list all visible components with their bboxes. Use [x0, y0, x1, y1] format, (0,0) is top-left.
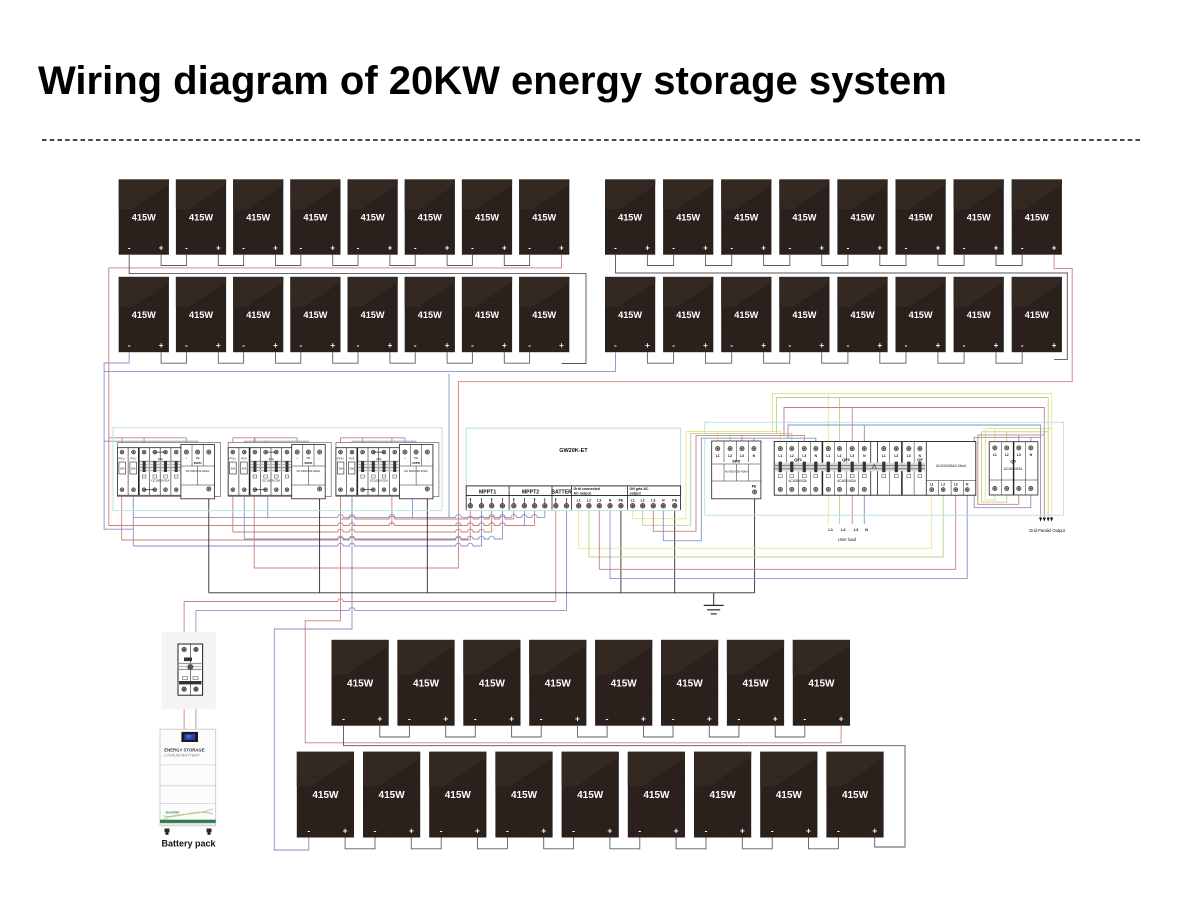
svg-text:-: - — [572, 826, 575, 836]
svg-text:BATTER: BATTER — [551, 489, 572, 495]
svg-text:415W: 415W — [792, 310, 816, 320]
svg-text:+: + — [273, 244, 278, 253]
svg-text:415W: 415W — [792, 212, 816, 222]
svg-text:-: - — [606, 714, 609, 724]
svg-text:L3: L3 — [850, 454, 854, 458]
svg-text:-: - — [242, 244, 245, 253]
svg-text:L1: L1 — [631, 499, 635, 503]
svg-text:-: - — [540, 714, 543, 724]
svg-text:-: - — [566, 498, 567, 502]
svg-text:+: + — [330, 341, 335, 350]
svg-text:2SPD: 2SPD — [304, 461, 313, 465]
svg-text:-: - — [502, 498, 503, 502]
svg-text:+: + — [994, 244, 999, 253]
svg-text:-: - — [737, 714, 740, 724]
svg-text:output: output — [630, 492, 642, 496]
svg-text:+: + — [330, 244, 335, 253]
svg-text:415W: 415W — [189, 310, 213, 320]
svg-text:L2: L2 — [587, 499, 591, 503]
svg-text:+: + — [645, 341, 650, 350]
svg-text:-: - — [242, 341, 245, 350]
svg-text:MPPT2: MPPT2 — [522, 489, 539, 495]
svg-text:PV2+: PV2+ — [229, 457, 236, 461]
svg-text:+: + — [641, 714, 646, 724]
svg-text:-: - — [905, 244, 908, 253]
svg-text:L2: L2 — [1005, 453, 1009, 457]
svg-text:415W: 415W — [132, 310, 156, 320]
svg-text:PV2-: PV2- — [241, 457, 247, 461]
svg-text:415W: 415W — [909, 310, 933, 320]
svg-text:+: + — [761, 244, 766, 253]
svg-text:415W: 415W — [734, 310, 758, 320]
svg-text:+: + — [443, 714, 448, 724]
svg-text:-: - — [905, 341, 908, 350]
svg-text:+: + — [936, 341, 941, 350]
svg-text:415W: 415W — [479, 678, 506, 689]
svg-text:+: + — [936, 244, 941, 253]
svg-text:415W: 415W — [1025, 310, 1049, 320]
svg-text:415W: 415W — [545, 678, 572, 689]
svg-text:-: - — [963, 341, 966, 350]
svg-text:+: + — [575, 714, 580, 724]
svg-text:415W: 415W — [532, 310, 556, 320]
svg-text:-: - — [544, 498, 545, 502]
svg-text:L3: L3 — [907, 454, 911, 458]
svg-text:+: + — [377, 714, 382, 724]
svg-text:-: - — [847, 341, 850, 350]
svg-text:-: - — [357, 341, 360, 350]
svg-text:+: + — [703, 244, 708, 253]
svg-text:-: - — [307, 826, 310, 836]
svg-text:+: + — [872, 826, 877, 836]
svg-text:415W: 415W — [710, 790, 737, 801]
svg-text:415W: 415W — [418, 310, 442, 320]
svg-text:-: - — [414, 244, 417, 253]
svg-text:-: - — [299, 341, 302, 350]
svg-text:415W: 415W — [618, 310, 642, 320]
svg-text:+: + — [509, 714, 514, 724]
svg-text:+: + — [559, 244, 564, 253]
svg-text:PV1+: PV1+ — [119, 457, 126, 461]
svg-text:2SPD: 2SPD — [412, 461, 421, 465]
svg-text:PE: PE — [414, 456, 418, 460]
svg-text:-: - — [730, 244, 733, 253]
svg-text:-: - — [357, 244, 360, 253]
svg-text:Q5: Q5 — [1010, 459, 1016, 464]
svg-text:+: + — [819, 341, 824, 350]
svg-text:PV3+: PV3+ — [337, 457, 344, 461]
svg-text:415W: 415W — [850, 212, 874, 222]
svg-text:+: + — [216, 244, 221, 253]
svg-text:+: + — [534, 498, 536, 502]
svg-text:SPD: SPD — [732, 459, 740, 464]
svg-text:+: + — [707, 714, 712, 724]
svg-text:63A: 63A — [269, 457, 274, 461]
svg-text:LITHIUM BATTERY: LITHIUM BATTERY — [164, 752, 200, 757]
svg-text:-: - — [408, 714, 411, 724]
svg-text:415W: 415W — [808, 678, 835, 689]
svg-text:415W: 415W — [475, 310, 499, 320]
svg-text:415W: 415W — [246, 310, 270, 320]
svg-text:L1: L1 — [882, 454, 886, 458]
svg-text:AC output: AC output — [574, 492, 592, 496]
svg-text:415W: 415W — [618, 212, 642, 222]
svg-text:DC1000V/32A: DC1000V/32A — [151, 479, 169, 483]
svg-text:415W: 415W — [967, 310, 991, 320]
svg-text:-: - — [342, 714, 345, 724]
svg-text:-: - — [481, 498, 482, 502]
svg-text:+: + — [469, 498, 471, 502]
svg-text:L2: L2 — [841, 527, 846, 532]
svg-text:+: + — [555, 498, 557, 502]
svg-text:+: + — [475, 826, 480, 836]
svg-text:415W: 415W — [842, 790, 869, 801]
svg-text:-: - — [705, 826, 708, 836]
svg-text:L2: L2 — [941, 482, 945, 486]
svg-text:415W: 415W — [643, 790, 670, 801]
svg-text:415W: 415W — [776, 790, 803, 801]
svg-text:30A: 30A — [231, 467, 236, 471]
svg-text:N: N — [609, 499, 612, 503]
svg-text:+: + — [159, 341, 164, 350]
svg-text:+: + — [839, 714, 844, 724]
svg-text:415W: 415W — [532, 212, 556, 222]
svg-text:AC400V/63A: AC400V/63A — [788, 479, 807, 483]
svg-text:L1: L1 — [778, 454, 782, 458]
svg-text:GoodWe: GoodWe — [166, 811, 180, 815]
svg-text:415W: 415W — [361, 212, 385, 222]
svg-text:415W: 415W — [742, 678, 769, 689]
svg-text:+: + — [216, 341, 221, 350]
svg-text:PE: PE — [307, 456, 311, 460]
svg-text:+: + — [273, 341, 278, 350]
svg-text:-: - — [788, 341, 791, 350]
svg-text:+: + — [877, 244, 882, 253]
svg-text:AC400V/63A/0.03mA: AC400V/63A/0.03mA — [936, 464, 967, 468]
svg-text:QF: QF — [917, 457, 923, 462]
svg-text:30A: 30A — [349, 467, 354, 471]
svg-text:AC400V/63A: AC400V/63A — [1004, 467, 1023, 471]
svg-text:-: - — [672, 714, 675, 724]
svg-text:30A: 30A — [131, 467, 136, 471]
svg-text:+: + — [994, 341, 999, 350]
svg-text:L3: L3 — [854, 527, 859, 532]
svg-text:L1: L1 — [993, 453, 997, 457]
svg-text:+: + — [1052, 341, 1057, 350]
svg-text:N: N — [865, 527, 868, 532]
svg-text:DC1000V/32A: DC1000V/32A — [370, 479, 388, 483]
svg-text:GW20K-ET: GW20K-ET — [559, 448, 588, 454]
svg-text:L2: L2 — [894, 454, 898, 458]
svg-text:+: + — [502, 341, 507, 350]
svg-text:-: - — [524, 498, 525, 502]
svg-text:-: - — [414, 341, 417, 350]
svg-text:-: - — [506, 826, 509, 836]
svg-text:30A: 30A — [242, 467, 247, 471]
svg-text:MPPT1: MPPT1 — [479, 489, 496, 495]
svg-text:415W: 415W — [132, 212, 156, 222]
svg-text:415W: 415W — [379, 790, 406, 801]
svg-text:+: + — [703, 341, 708, 350]
svg-text:L1: L1 — [826, 454, 830, 458]
svg-text:415W: 415W — [511, 790, 538, 801]
svg-text:-: - — [672, 341, 675, 350]
svg-text:+: + — [513, 498, 515, 502]
svg-text:-: - — [299, 244, 302, 253]
svg-text:-: - — [803, 714, 806, 724]
svg-text:User load: User load — [838, 537, 857, 542]
svg-text:L2: L2 — [838, 454, 842, 458]
svg-text:Battery pack: Battery pack — [161, 839, 216, 849]
svg-text:L3: L3 — [1017, 453, 1021, 457]
svg-text:-: - — [672, 244, 675, 253]
svg-text:PE: PE — [196, 456, 200, 460]
svg-text:+: + — [607, 826, 612, 836]
svg-text:-: - — [528, 244, 531, 253]
svg-text:415W: 415W — [577, 790, 604, 801]
svg-text:-: - — [128, 341, 131, 350]
svg-text:-: - — [837, 826, 840, 836]
svg-text:-: - — [771, 826, 774, 836]
svg-text:415W: 415W — [909, 212, 933, 222]
svg-text:63A: 63A — [376, 457, 381, 461]
svg-text:+: + — [877, 341, 882, 350]
svg-text:Wiring diagram of 20KW energy: Wiring diagram of 20KW energy storage sy… — [38, 59, 947, 103]
svg-text:L1: L1 — [930, 482, 934, 486]
svg-text:-: - — [1021, 341, 1024, 350]
svg-text:-: - — [528, 341, 531, 350]
svg-text:+: + — [740, 826, 745, 836]
svg-text:63A: 63A — [158, 457, 163, 461]
svg-text:-: - — [185, 341, 188, 350]
svg-text:-: - — [474, 714, 477, 724]
svg-text:+: + — [388, 244, 393, 253]
svg-text:PV3-: PV3- — [349, 457, 355, 461]
svg-text:+: + — [409, 826, 414, 836]
svg-text:-: - — [440, 826, 443, 836]
svg-text:-: - — [374, 826, 377, 836]
svg-text:415W: 415W — [850, 310, 874, 320]
svg-text:L3: L3 — [954, 482, 958, 486]
svg-text:AC400V/63A: AC400V/63A — [837, 479, 856, 483]
svg-text:415W: 415W — [445, 790, 472, 801]
svg-text:415W: 415W — [734, 212, 758, 222]
svg-text:-: - — [185, 244, 188, 253]
svg-text:PV1-: PV1- — [130, 457, 136, 461]
svg-text:-: - — [1021, 244, 1024, 253]
svg-text:+: + — [445, 341, 450, 350]
svg-text:+: + — [159, 244, 164, 253]
svg-text:+: + — [445, 244, 450, 253]
svg-text:415W: 415W — [967, 212, 991, 222]
svg-text:+: + — [343, 826, 348, 836]
svg-text:+: + — [674, 826, 679, 836]
svg-text:+: + — [491, 498, 493, 502]
svg-text:-: - — [614, 341, 617, 350]
svg-text:30A: 30A — [120, 467, 125, 471]
svg-text:415W: 415W — [303, 212, 327, 222]
svg-text:+: + — [388, 341, 393, 350]
svg-text:PE: PE — [672, 499, 677, 503]
svg-text:-: - — [847, 244, 850, 253]
svg-text:-: - — [730, 341, 733, 350]
svg-text:+: + — [806, 826, 811, 836]
svg-text:N: N — [662, 499, 665, 503]
svg-text:L3: L3 — [651, 499, 655, 503]
svg-text:415W: 415W — [475, 212, 499, 222]
svg-text:+: + — [819, 244, 824, 253]
svg-text:+: + — [559, 341, 564, 350]
svg-text:415W: 415W — [312, 790, 339, 801]
svg-text:-: - — [427, 456, 428, 460]
svg-text:-: - — [638, 826, 641, 836]
svg-text:L3: L3 — [740, 454, 744, 458]
svg-text:Grid Paralel Output: Grid Paralel Output — [1029, 528, 1066, 533]
svg-text:415W: 415W — [413, 678, 440, 689]
svg-text:-: - — [471, 341, 474, 350]
svg-text:415W: 415W — [677, 678, 704, 689]
svg-text:-: - — [788, 244, 791, 253]
svg-text:Off grid AC: Off grid AC — [630, 487, 649, 491]
svg-text:+: + — [761, 341, 766, 350]
svg-text:L2: L2 — [641, 499, 645, 503]
svg-text:Grid connected: Grid connected — [574, 487, 600, 491]
svg-text:415W: 415W — [676, 212, 700, 222]
svg-text:+: + — [645, 244, 650, 253]
svg-text:+: + — [502, 244, 507, 253]
svg-text:-: - — [614, 244, 617, 253]
svg-text:PE: PE — [752, 485, 757, 489]
svg-text:415W: 415W — [347, 678, 374, 689]
svg-text:415W: 415W — [303, 310, 327, 320]
svg-text:-: - — [963, 244, 966, 253]
svg-text:415W: 415W — [676, 310, 700, 320]
svg-text:L3: L3 — [597, 499, 601, 503]
svg-text:+: + — [541, 826, 546, 836]
svg-text:L2: L2 — [728, 454, 732, 458]
svg-text:QF1: QF1 — [794, 457, 803, 462]
svg-text:415W: 415W — [361, 310, 385, 320]
svg-text:415W: 415W — [418, 212, 442, 222]
svg-text:415W: 415W — [1025, 212, 1049, 222]
svg-text:DC1000V/32A: DC1000V/32A — [262, 479, 280, 483]
svg-text:-: - — [208, 456, 209, 460]
svg-text:L1: L1 — [716, 454, 720, 458]
svg-text:L1: L1 — [828, 527, 833, 532]
svg-text:415W: 415W — [189, 212, 213, 222]
svg-text:415W: 415W — [246, 212, 270, 222]
svg-text:-: - — [319, 456, 320, 460]
svg-text:415W: 415W — [611, 678, 638, 689]
svg-text:-: - — [471, 244, 474, 253]
svg-text:QF2: QF2 — [842, 457, 851, 462]
svg-text:30A: 30A — [338, 467, 343, 471]
svg-text:PE: PE — [619, 499, 624, 503]
svg-text:2SPD: 2SPD — [194, 461, 203, 465]
svg-text:L1: L1 — [577, 499, 581, 503]
svg-text:L3: L3 — [802, 454, 806, 458]
svg-text:+: + — [773, 714, 778, 724]
svg-text:-: - — [128, 244, 131, 253]
svg-text:+: + — [1052, 244, 1057, 253]
